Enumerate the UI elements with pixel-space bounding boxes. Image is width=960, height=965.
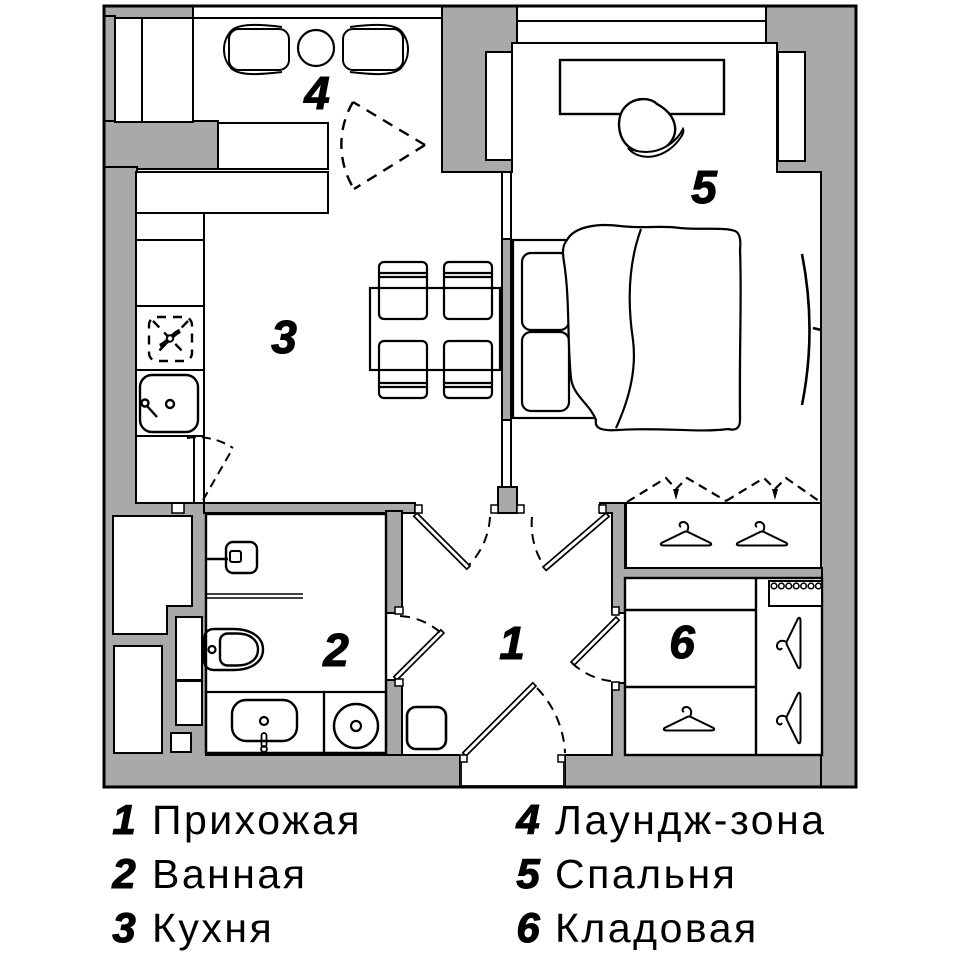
- svg-text:Кухня: Кухня: [152, 905, 274, 951]
- svg-text:3: 3: [112, 904, 135, 951]
- svg-text:Прихожая: Прихожая: [152, 797, 362, 843]
- svg-text:2: 2: [322, 624, 349, 676]
- svg-text:3: 3: [271, 311, 297, 363]
- svg-text:Кладовая: Кладовая: [555, 905, 759, 951]
- svg-text:Ванная: Ванная: [152, 851, 307, 897]
- svg-text:1: 1: [499, 617, 525, 669]
- svg-text:5: 5: [691, 161, 718, 213]
- svg-text:5: 5: [516, 850, 540, 897]
- svg-text:4: 4: [515, 796, 539, 843]
- svg-text:6: 6: [669, 616, 695, 668]
- svg-text:6: 6: [516, 904, 540, 951]
- svg-text:Лаундж-зона: Лаундж-зона: [555, 797, 826, 843]
- svg-text:1: 1: [112, 796, 135, 843]
- svg-text:4: 4: [303, 67, 330, 119]
- svg-text:2: 2: [111, 850, 135, 897]
- svg-text:Спальня: Спальня: [555, 851, 737, 897]
